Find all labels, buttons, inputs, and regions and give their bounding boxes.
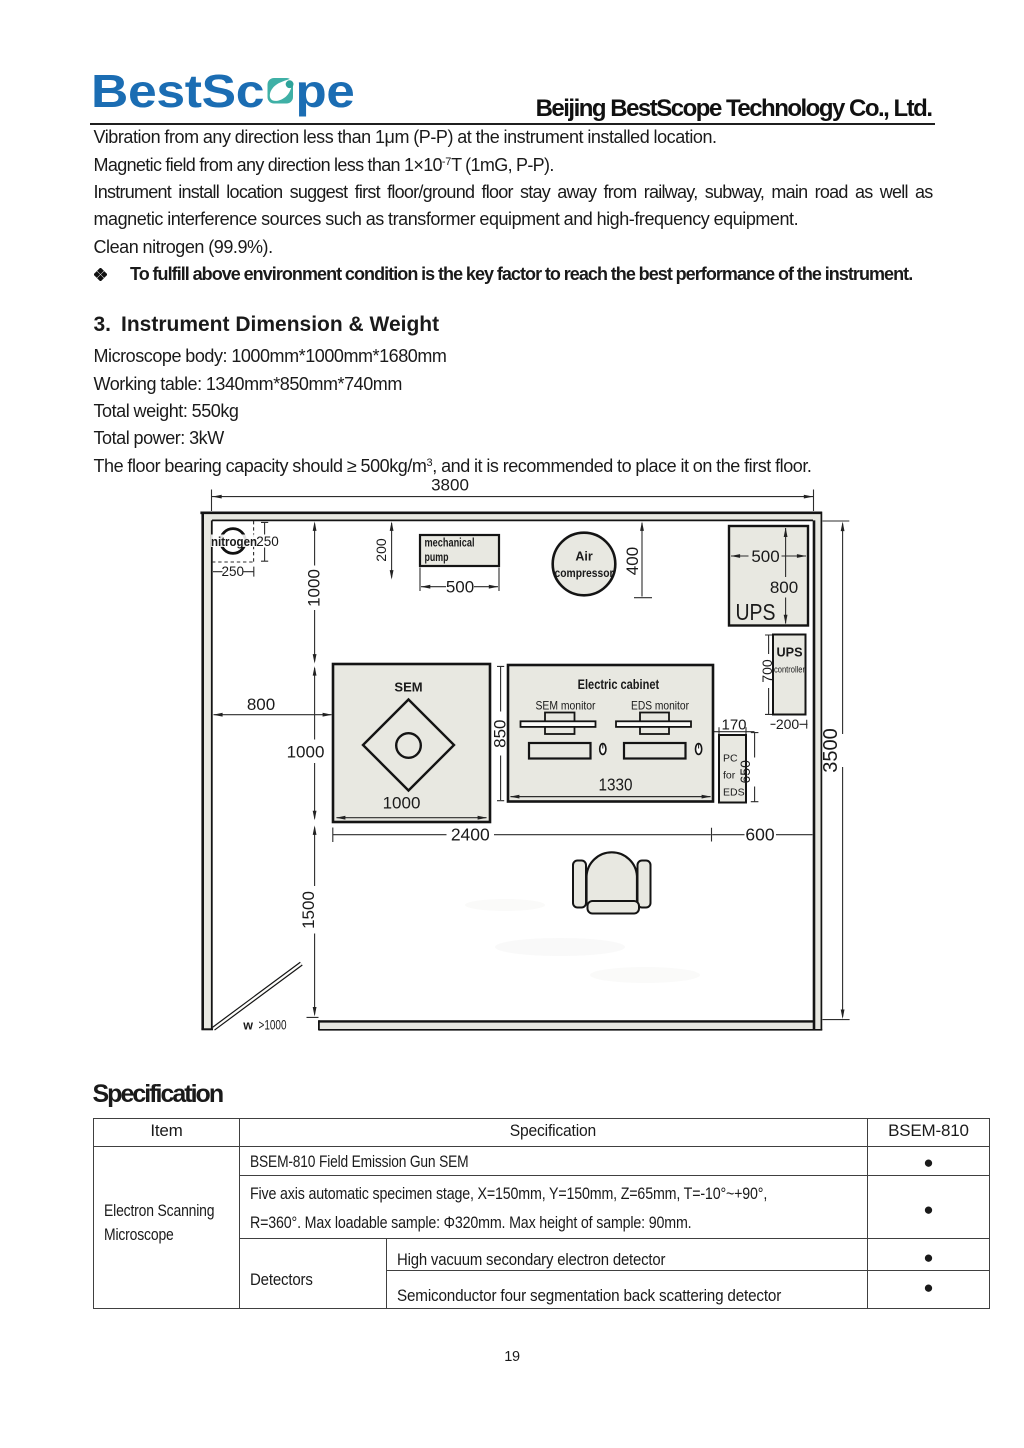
- svg-text:700: 700: [759, 659, 775, 683]
- svg-text:EDS: EDS: [723, 787, 745, 799]
- svg-text:w: w: [242, 1018, 253, 1032]
- svg-text:1000: 1000: [383, 794, 421, 813]
- svg-text:SEM: SEM: [394, 680, 422, 695]
- svg-text:Air: Air: [575, 550, 593, 564]
- svg-text:600: 600: [745, 824, 774, 844]
- svg-text:UPS: UPS: [736, 599, 776, 625]
- svg-text:pump: pump: [425, 552, 449, 564]
- svg-text:250: 250: [256, 534, 279, 549]
- svg-text:1000: 1000: [287, 742, 325, 761]
- svg-text:UPS: UPS: [777, 645, 803, 660]
- svg-text:800: 800: [247, 695, 275, 714]
- svg-text:170: 170: [721, 717, 746, 734]
- svg-text:for: for: [723, 770, 736, 782]
- svg-text:200: 200: [373, 538, 389, 562]
- svg-text:200: 200: [776, 716, 800, 732]
- svg-text:>1000: >1000: [259, 1017, 287, 1032]
- svg-text:SEM monitor: SEM monitor: [536, 699, 596, 713]
- svg-text:800: 800: [770, 578, 798, 597]
- svg-text:850: 850: [490, 720, 509, 748]
- svg-text:pe: pe: [296, 67, 355, 117]
- svg-text:1330: 1330: [599, 775, 633, 795]
- svg-text:3500: 3500: [820, 728, 842, 773]
- svg-text:3800: 3800: [431, 476, 469, 495]
- svg-text:1500: 1500: [299, 891, 318, 929]
- svg-text:650: 650: [737, 760, 753, 784]
- svg-text:500: 500: [751, 547, 779, 566]
- svg-text:compressor: compressor: [555, 566, 614, 580]
- svg-text:nitrogen: nitrogen: [211, 535, 257, 549]
- svg-text:controller: controller: [774, 665, 805, 675]
- svg-text:400: 400: [623, 547, 642, 575]
- svg-text:2400: 2400: [451, 824, 490, 844]
- svg-text:250: 250: [222, 564, 245, 579]
- svg-text:EDS monitor: EDS monitor: [631, 699, 689, 713]
- svg-text:Electric cabinet: Electric cabinet: [578, 676, 660, 692]
- svg-text:PC: PC: [723, 753, 738, 765]
- svg-text:BestSc: BestSc: [91, 67, 264, 117]
- svg-text:mechanical: mechanical: [425, 538, 475, 550]
- svg-text:1000: 1000: [305, 569, 324, 607]
- svg-text:500: 500: [446, 577, 474, 596]
